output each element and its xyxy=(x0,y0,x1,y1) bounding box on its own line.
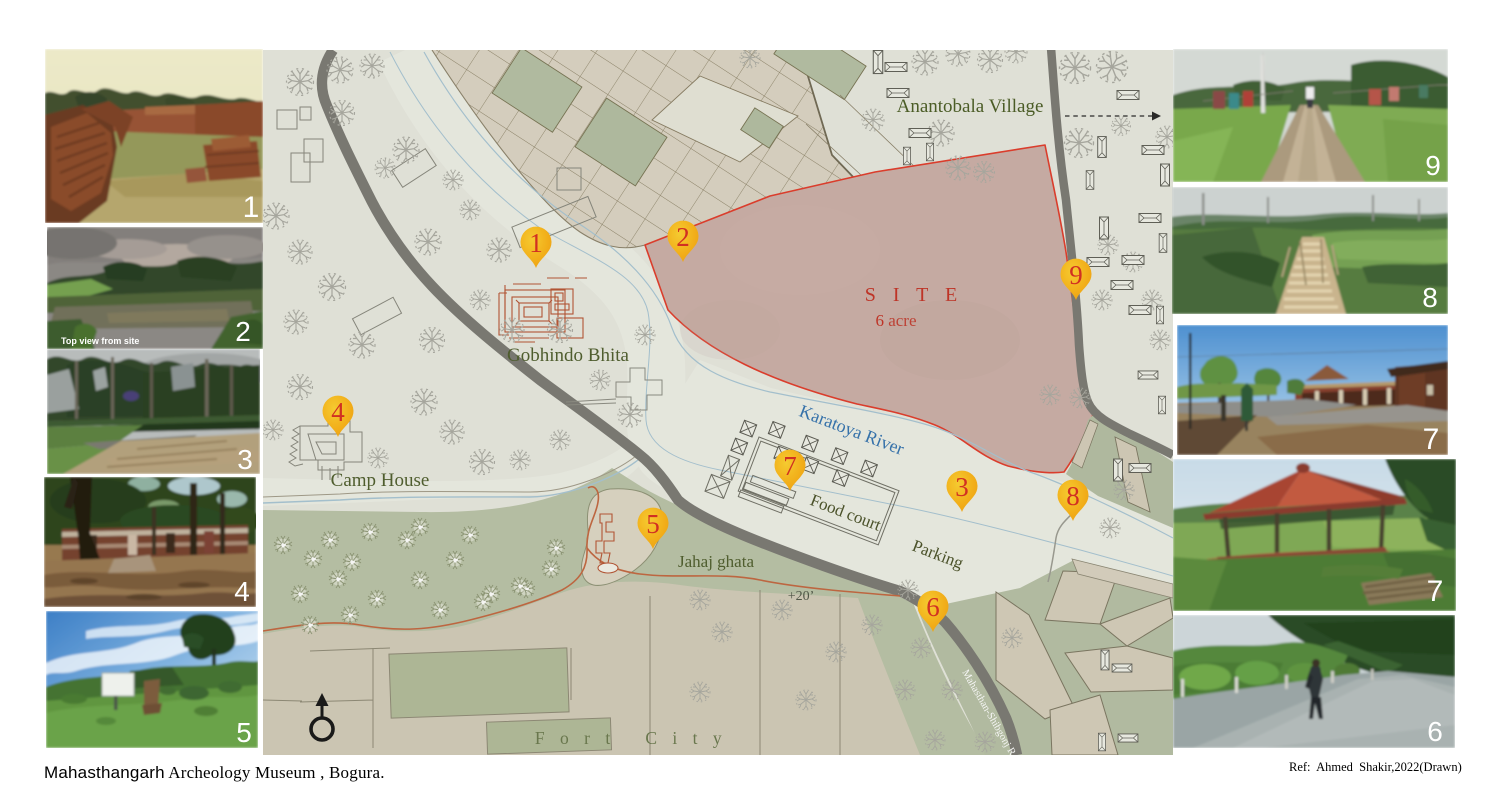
svg-text:9: 9 xyxy=(1425,150,1441,181)
svg-text:7: 7 xyxy=(1427,575,1444,608)
svg-text:7: 7 xyxy=(1423,423,1440,455)
svg-text:4: 4 xyxy=(234,576,250,607)
svg-text:6: 6 xyxy=(1427,716,1443,747)
svg-text:5: 5 xyxy=(236,717,252,748)
svg-text:Top view from site: Top view from site xyxy=(61,336,139,346)
svg-text:1: 1 xyxy=(243,191,260,223)
svg-text:3: 3 xyxy=(237,444,253,474)
svg-text:8: 8 xyxy=(1422,282,1438,313)
svg-text:2: 2 xyxy=(235,316,251,347)
